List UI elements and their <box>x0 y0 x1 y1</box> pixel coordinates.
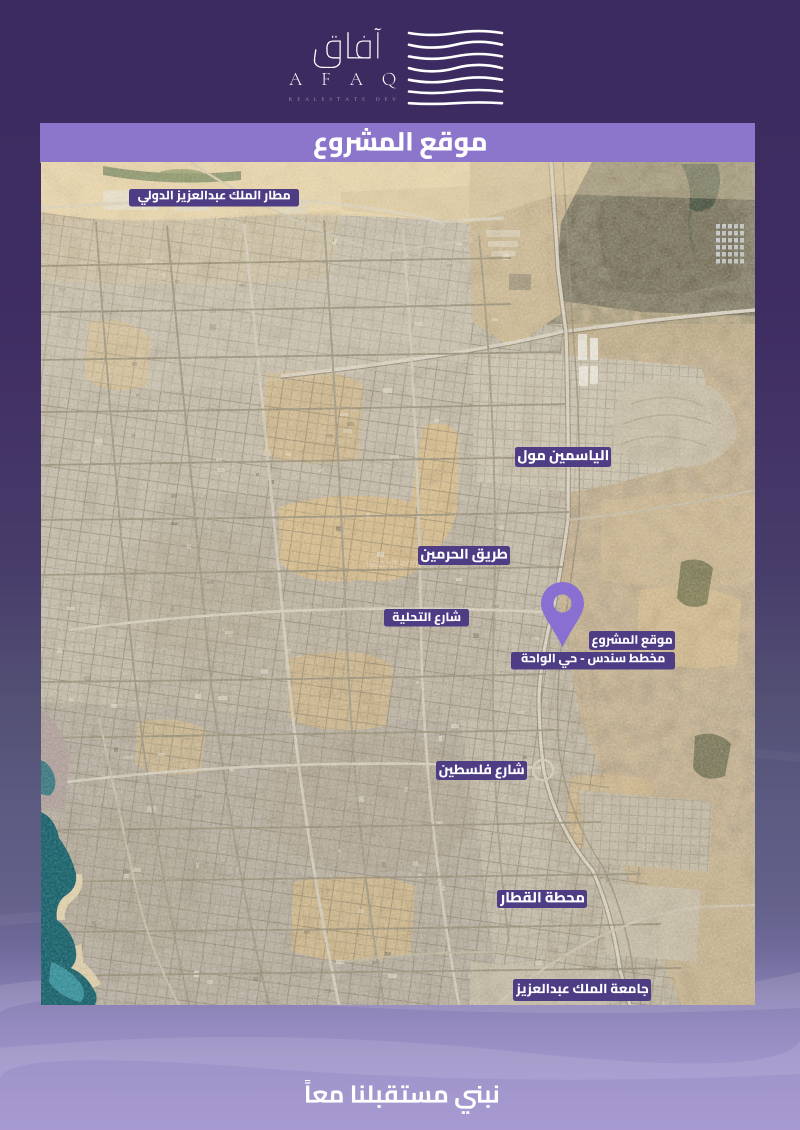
svg-text:wasalt.com: wasalt.com <box>365 558 421 570</box>
